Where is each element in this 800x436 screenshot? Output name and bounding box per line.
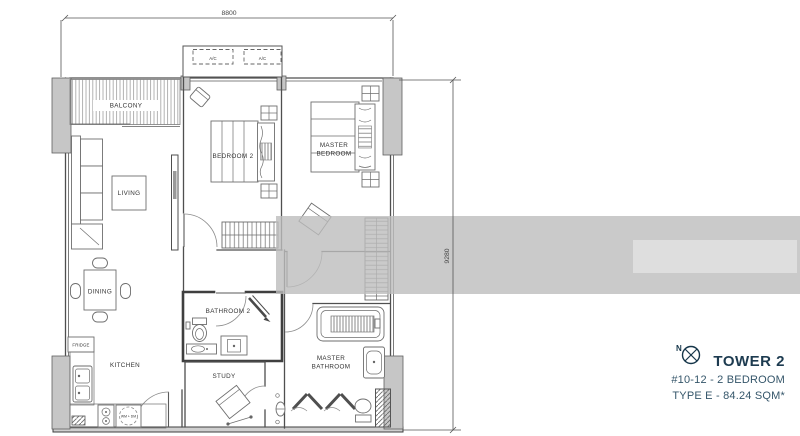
study: STUDY [212, 373, 252, 426]
bathroom2-vanity [187, 344, 217, 354]
unit-info: #10-12 - 2 BEDROOM [671, 374, 785, 386]
bathroom2-diagonal-door [249, 296, 271, 323]
dining-chair [93, 312, 108, 322]
master-bed [311, 102, 359, 172]
bathroom2-accessory [186, 322, 190, 329]
living-room: LIVING [72, 136, 177, 249]
dining-label: DINING [88, 289, 112, 296]
floor-plan-page: A/C A/C BALCONY [0, 0, 800, 436]
balcony-label: BALCONY [110, 103, 143, 110]
bathroom2-label: BATHROOM 2 [206, 308, 251, 315]
title-block: N TOWER 2 #10-12 - 2 BEDROOM TYPE E - 84… [671, 341, 785, 402]
master-bathroom: MASTER BATHROOM [276, 307, 391, 427]
master-nightstand [362, 172, 379, 187]
sofa [72, 136, 81, 224]
kitchen-label: KITCHEN [110, 362, 140, 369]
ac-ledge: A/C A/C [183, 46, 282, 77]
dim-height-label: 9280 [444, 248, 451, 263]
master-shower [376, 389, 391, 427]
bathroom2-toilet [193, 318, 207, 342]
bathroom2-shower [221, 336, 247, 355]
dining-chair [71, 284, 81, 299]
washer-dryer: WM + DM [116, 405, 141, 427]
bedroom2-bed [211, 121, 258, 182]
master-bathroom-label-1: MASTER [317, 355, 345, 362]
dining-chair [93, 258, 108, 268]
study-label: STUDY [212, 373, 236, 380]
master-bathtub [317, 307, 384, 341]
master-bathroom-door [285, 304, 313, 332]
master-toilet [355, 399, 371, 422]
bedroom2: BEDROOM 2 [189, 86, 278, 248]
kitchen: FRIDGE WM + DM KITCHEN [68, 337, 166, 428]
hob [98, 405, 114, 427]
master-nightstand [362, 86, 379, 101]
tv-wall [172, 155, 179, 250]
bedroom2-nightstand [261, 184, 277, 198]
master-bathroom-label-2: BATHROOM [312, 364, 351, 371]
ac-unit-2-label: A/C [259, 56, 267, 61]
living-label: LIVING [118, 190, 141, 197]
powder-basin [276, 394, 285, 424]
master-bedroom-label-2: BEDROOM [317, 151, 352, 158]
north-compass-icon: N [671, 341, 705, 367]
master-bedroom-label-1: MASTER [320, 142, 348, 149]
compass-north-label: N [676, 344, 682, 353]
bedroom2-nightstand [261, 106, 277, 120]
bedroom2-chair [189, 86, 210, 107]
watermark-band [276, 216, 800, 294]
fridge-label: FRIDGE [72, 342, 89, 347]
dining-chair [121, 284, 131, 299]
study-desk [216, 385, 250, 418]
wm-dm-label: WM + DM [121, 414, 136, 418]
balcony-area: BALCONY [70, 80, 180, 127]
bathroom2: BATHROOM 2 [186, 308, 250, 355]
kitchen-drawer [72, 416, 85, 425]
type-info: TYPE E - 84.24 SQM* [671, 390, 785, 402]
dim-width-label: 8800 [221, 10, 236, 17]
master-vanity [364, 347, 385, 378]
kitchen-sink [73, 366, 92, 402]
ac-unit-1-label: A/C [209, 56, 217, 61]
dining-area: DINING [71, 258, 131, 322]
bedroom2-label: BEDROOM 2 [213, 153, 254, 160]
entry-bifold-doors [291, 394, 355, 411]
tv [173, 171, 177, 199]
